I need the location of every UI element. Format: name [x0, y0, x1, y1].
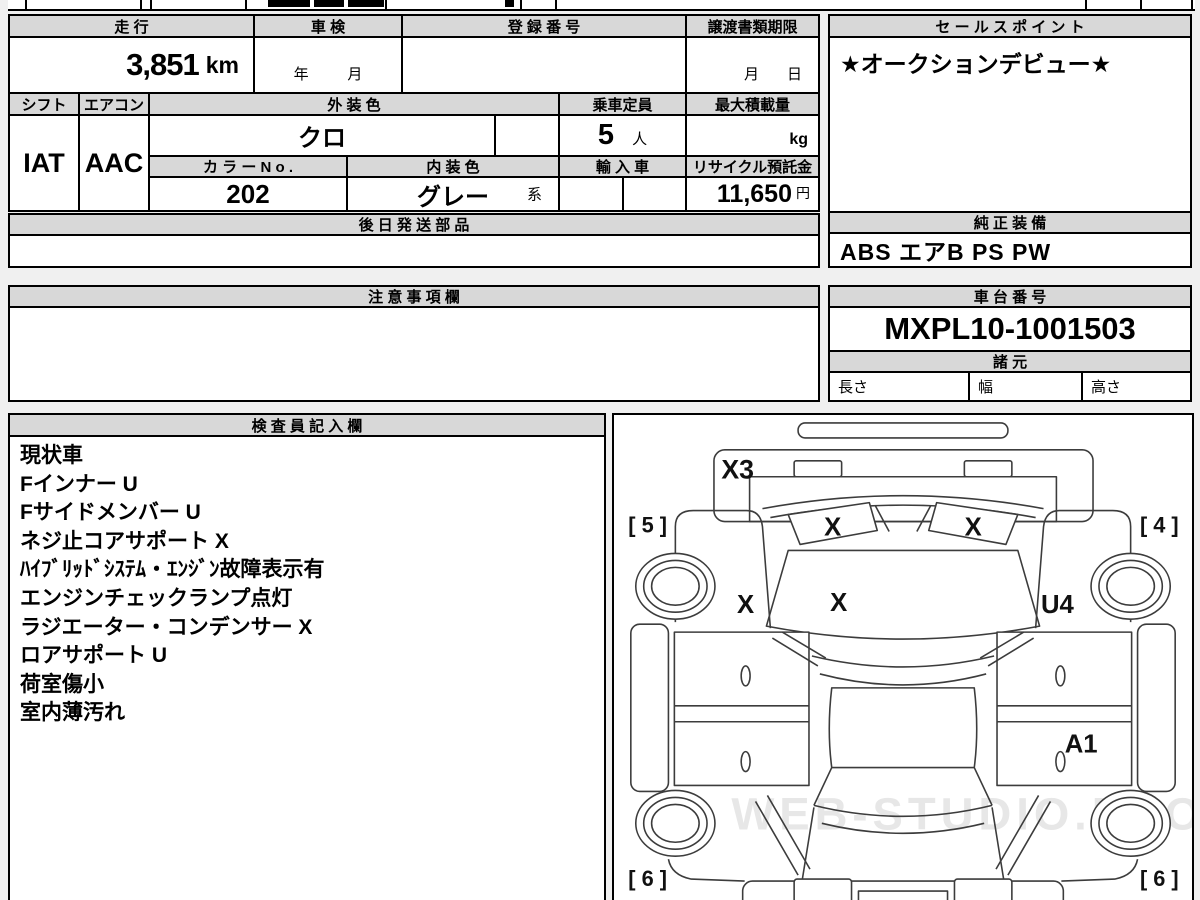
- corner-mark-rear-right: [ 6 ]: [1140, 866, 1179, 891]
- wheel-front-left-hub: [652, 567, 700, 605]
- aircon-value: AAC: [78, 114, 150, 212]
- table-border-remnant: [25, 0, 27, 9]
- inspector-note: エンジンチェックランプ点灯: [20, 585, 594, 614]
- recycle-deposit-unit: 円: [796, 183, 810, 210]
- capacity-header: 乗車定員: [558, 92, 687, 116]
- transfer-value-cell: 月 日: [685, 36, 820, 94]
- cutoff-glyph-remnant: [505, 0, 514, 7]
- front-top-strip: [798, 423, 1008, 438]
- mileage-header: 走 行: [8, 14, 255, 38]
- wheel-rear-left-hub: [652, 804, 700, 842]
- mileage-unit: km: [206, 52, 239, 79]
- mark-fender-right: U4: [1041, 591, 1075, 619]
- bumper-slot-left: [794, 461, 842, 477]
- shift-value: IAT: [8, 114, 80, 212]
- chassis-no-value: MXPL10-1001503: [828, 306, 1192, 352]
- mark-rear-quarter-right: A1: [1065, 731, 1098, 759]
- later-parts-value-cell: [8, 234, 820, 268]
- shaken-month-label: 月: [347, 63, 362, 84]
- cutoff-glyph-remnant: [314, 0, 344, 7]
- exterior-color-header: 外 装 色: [148, 92, 560, 116]
- bumper-slot-right: [964, 461, 1012, 477]
- mileage-value-cell: 3,851 km: [8, 36, 255, 94]
- roof: [829, 688, 976, 768]
- capacity-unit: 人: [632, 128, 647, 155]
- table-border-remnant: [1191, 0, 1193, 9]
- length-cell: 長さ: [828, 371, 970, 402]
- hood: [766, 550, 1039, 639]
- registration-value-cell: [401, 36, 687, 94]
- registration-header: 登 録 番 号: [401, 14, 687, 38]
- recycle-deposit-value: 11,650: [717, 180, 792, 209]
- auction-sheet: 走 行 車 検 登 録 番 号 譲渡書類期限 3,851 km 年 月 月 日 …: [0, 0, 1200, 900]
- genuine-equipment-text: ABS エアB PS PW: [840, 233, 1051, 267]
- inspector-note: ネジ止コアサポート X: [20, 528, 594, 557]
- shaken-header: 車 検: [253, 14, 403, 38]
- max-load-value-cell: kg: [685, 114, 820, 157]
- inspector-note: ﾊｲﾌﾞﾘｯﾄﾞｼｽﾃﾑ・ｴﾝｼﾞﾝ故障表示有: [20, 556, 594, 585]
- table-border-remnant: [245, 0, 247, 9]
- rear-license-area: [858, 891, 947, 900]
- genuine-equipment-value-cell: ABS エアB PS PW: [828, 232, 1192, 268]
- transfer-docs-header: 譲渡書類期限: [685, 14, 820, 38]
- corner-mark-front-left: [ 5 ]: [628, 512, 667, 537]
- mark-front-bumper: X3: [721, 455, 754, 485]
- capacity-value-cell: 5 人: [558, 114, 687, 157]
- wheel-front-right-hub: [1107, 567, 1155, 605]
- sill-left: [631, 624, 669, 791]
- inspector-note: ラジエーター・コンデンサー X: [20, 614, 594, 643]
- mark-headlight-left: X: [824, 513, 841, 541]
- table-border-remnant: [520, 0, 522, 9]
- mark-fender-left: X: [737, 591, 754, 619]
- car-damage-diagram: WEB-STUDIO.PRO: [614, 415, 1192, 900]
- door-handle-rear-left: [741, 752, 750, 772]
- rear-corner-left: [668, 859, 744, 881]
- sales-point-value-cell: ★オークションデビュー★: [828, 36, 1192, 213]
- inspector-note: 現状車: [20, 442, 594, 471]
- chassis-no-header: 車 台 番 号: [828, 285, 1192, 308]
- import-car-value-cell-2: [622, 176, 687, 212]
- table-border-remnant: [1085, 0, 1087, 9]
- inspector-notes-area: 現状車 Fインナー U Fサイドメンバー U ネジ止コアサポート X ﾊｲﾌﾞﾘ…: [8, 435, 606, 900]
- transfer-day-label: 日: [787, 63, 802, 84]
- wheel-rear-right-hub: [1107, 804, 1155, 842]
- mark-hood: X: [830, 589, 847, 617]
- shaken-year-label: 年: [294, 63, 309, 84]
- inspector-header: 検 査 員 記 入 欄: [8, 413, 606, 437]
- door-handle-front-right: [1056, 666, 1065, 686]
- sales-point-text: ★オークションデビュー★: [840, 51, 1111, 77]
- transfer-month-label: 月: [744, 63, 759, 84]
- rear-bumper-slot-left: [794, 879, 851, 900]
- exterior-color-value: クロ: [148, 114, 496, 157]
- aircon-header: エアコン: [78, 92, 150, 116]
- mark-headlight-right: X: [965, 513, 982, 541]
- later-parts-header: 後 日 発 送 部 品: [8, 213, 820, 236]
- interior-color-value-cell: グレー 系: [346, 176, 560, 212]
- max-load-unit: kg: [789, 131, 808, 149]
- width-cell: 幅: [968, 371, 1083, 402]
- exterior-color-sub-cell: [494, 114, 560, 157]
- shift-header: シフト: [8, 92, 80, 116]
- cutoff-glyph-remnant: [268, 0, 310, 7]
- import-car-value-cell-1: [558, 176, 624, 212]
- inspector-note: ロアサポート U: [20, 642, 594, 671]
- capacity-value: 5: [598, 119, 614, 152]
- table-border-remnant: [1140, 0, 1142, 9]
- specs-header: 諸 元: [828, 350, 1192, 373]
- table-border-remnant: [140, 0, 142, 9]
- recycle-deposit-header: リサイクル預託金: [685, 155, 820, 178]
- cutoff-row-remnant: [8, 0, 1195, 11]
- import-car-header: 輸 入 車: [558, 155, 687, 178]
- rear-bumper-slot-right: [954, 879, 1011, 900]
- table-border-remnant: [150, 0, 152, 9]
- inspector-note: 室内薄汚れ: [20, 699, 594, 728]
- inspector-note: Fサイドメンバー U: [20, 499, 594, 528]
- door-handle-rear-right: [1056, 752, 1065, 772]
- windshield-arc-2: [820, 674, 986, 685]
- cutoff-glyph-remnant: [348, 0, 384, 7]
- table-border-remnant: [555, 0, 557, 9]
- color-no-header: カ ラ ー N o .: [148, 155, 348, 178]
- corner-mark-front-right: [ 4 ]: [1140, 512, 1179, 537]
- shaken-value-cell: 年 月: [253, 36, 403, 94]
- front-bumper: [714, 450, 1093, 522]
- sill-right: [1138, 624, 1176, 791]
- color-no-value: 202: [148, 176, 348, 212]
- height-cell: 高さ: [1081, 371, 1192, 402]
- door-handle-front-left: [741, 666, 750, 686]
- inspector-note: Fインナー U: [20, 471, 594, 500]
- genuine-equipment-header: 純 正 装 備: [828, 211, 1192, 234]
- max-load-header: 最大積載量: [685, 92, 820, 116]
- caution-header: 注 意 事 項 欄: [8, 285, 820, 308]
- caution-value-cell: [8, 306, 820, 402]
- recycle-deposit-value-cell: 11,650 円: [685, 176, 820, 212]
- rear-corner-right: [1061, 859, 1137, 881]
- table-border-remnant: [385, 0, 387, 9]
- damage-diagram-box: WEB-STUDIO.PRO: [612, 413, 1194, 900]
- interior-color-header: 内 装 色: [346, 155, 560, 178]
- sales-point-header: セ ー ル ス ポ イ ン ト: [828, 14, 1192, 38]
- windshield-arc-1: [812, 656, 994, 667]
- corner-mark-rear-left: [ 6 ]: [628, 866, 667, 891]
- interior-color-suffix: 系: [527, 184, 542, 205]
- mileage-value: 3,851: [126, 47, 199, 83]
- inspector-note: 荷室傷小: [20, 671, 594, 700]
